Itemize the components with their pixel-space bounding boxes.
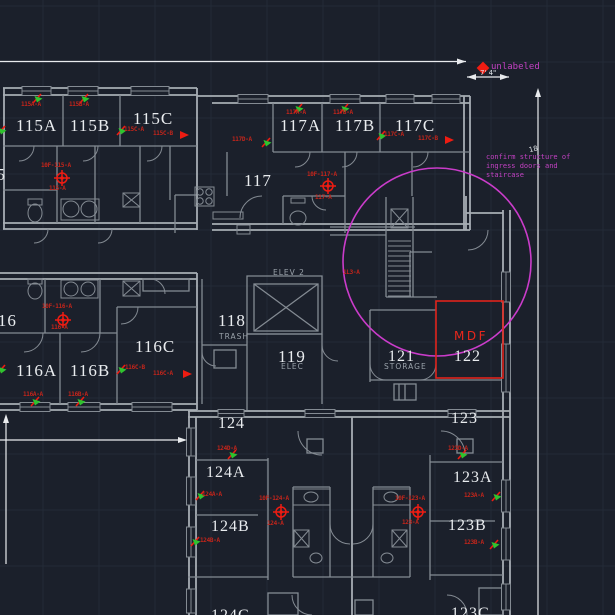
device-flag-marker[interactable] <box>492 492 502 501</box>
device-flag-marker[interactable] <box>262 138 272 147</box>
device-flag-marker[interactable] <box>490 540 500 549</box>
device-label-117-A[interactable]: 117-A <box>315 195 332 201</box>
device-markers-layer <box>0 0 615 615</box>
drawing-canvas[interactable]: 115115A115B115C117A117B117C117116116A116… <box>0 0 615 615</box>
device-label-124B-A[interactable]: 124B-A <box>200 538 220 544</box>
device-label-10F-116-A[interactable]: 10F-116-A <box>42 304 72 310</box>
device-label-124-A[interactable]: 124-A <box>267 521 284 527</box>
room-label-116: 116 <box>0 312 17 329</box>
note-line-1[interactable]: confirm structure of <box>486 154 570 161</box>
device-label-123A-A[interactable]: 123A-A <box>464 493 484 499</box>
device-label-117C-A[interactable]: 117C-A <box>384 132 404 138</box>
room-label-123: 123 <box>451 411 478 427</box>
device-label-115B-A[interactable]: 115B-A <box>69 102 89 108</box>
room-label-116C: 116C <box>135 338 175 355</box>
device-label-10F-115-A[interactable]: 10F-115-A <box>41 163 71 169</box>
device-label-115C-B[interactable]: 115C-B <box>153 131 173 137</box>
note-line-3[interactable]: staircase <box>486 172 524 179</box>
room-label-124B: 124B <box>211 519 250 535</box>
device-label-1L3-A[interactable]: 1L3-A <box>343 270 360 276</box>
device-label-116-A[interactable]: 116-A <box>51 325 68 331</box>
room-label-116B: 116B <box>70 362 110 379</box>
device-label-123-A[interactable]: 123-A <box>402 520 419 526</box>
device-label-117B-A[interactable]: 117B-A <box>333 110 353 116</box>
detector-target-marker[interactable] <box>410 504 426 520</box>
device-arrow-marker[interactable] <box>183 370 192 378</box>
room-label-123C: 123C <box>451 606 490 615</box>
device-label-115A-A[interactable]: 115A-A <box>21 102 41 108</box>
room-label-116A: 116A <box>16 362 57 379</box>
room-label-123A: 123A <box>453 470 493 486</box>
unlabeled-annotation[interactable]: unlabeled <box>491 63 540 72</box>
device-label-10F-123-A[interactable]: 10F-123-A <box>395 496 425 502</box>
device-label-123B-A[interactable]: 123B-A <box>464 540 484 546</box>
device-label-117A-A[interactable]: 117A-A <box>286 110 306 116</box>
device-arrow-marker[interactable] <box>445 136 454 144</box>
room-sublabel-trash: TRASH <box>219 333 249 341</box>
device-flag-marker[interactable] <box>31 397 41 406</box>
detector-target-marker[interactable] <box>54 170 70 186</box>
room-label-124: 124 <box>218 416 245 432</box>
device-flag-marker[interactable] <box>0 365 7 374</box>
room-label-118: 118 <box>218 312 246 329</box>
width-dimension-text: 7' 4" <box>480 70 496 77</box>
device-label-123D-A[interactable]: 123D-A <box>448 446 468 452</box>
room-label-117: 117 <box>244 172 272 189</box>
device-flag-marker[interactable] <box>76 397 86 406</box>
mdf-room-tag[interactable]: MDF <box>454 329 488 343</box>
device-label-116A-A[interactable]: 116A-A <box>23 392 43 398</box>
device-label-116C-A[interactable]: 116C-A <box>153 371 173 377</box>
device-flag-marker[interactable] <box>0 126 7 135</box>
device-label-116B-A[interactable]: 116B-A <box>68 392 88 398</box>
detector-target-marker[interactable] <box>273 504 289 520</box>
room-label-123B: 123B <box>448 518 487 534</box>
device-label-115-A[interactable]: 115-A <box>49 186 66 192</box>
room-label-115B: 115B <box>70 117 110 134</box>
room-label-115C: 115C <box>133 110 173 127</box>
device-label-117C-B[interactable]: 117C-B <box>418 136 438 142</box>
device-label-117D-A[interactable]: 117D-A <box>232 137 252 143</box>
room-label-124A: 124A <box>206 465 246 481</box>
room-label-122: 122 <box>454 349 481 365</box>
device-label-116C-B[interactable]: 116C-B <box>125 365 145 371</box>
device-label-10F-124-A[interactable]: 10F-124-A <box>259 496 289 502</box>
room-label-115A: 115A <box>16 117 57 134</box>
detector-target-marker[interactable] <box>320 178 336 194</box>
note-line-2[interactable]: ingress doors and <box>486 163 558 170</box>
device-label-124A-A[interactable]: 124A-A <box>202 492 222 498</box>
device-arrow-marker[interactable] <box>180 131 189 139</box>
room-sublabel-elev-2: ELEV 2 <box>273 269 305 277</box>
room-label-117A: 117A <box>280 117 321 134</box>
room-label-124C: 124C <box>211 608 250 615</box>
device-label-10F-117-A[interactable]: 10F-117-A <box>307 172 337 178</box>
room-label-117B: 117B <box>335 117 375 134</box>
room-sublabel-storage: STORAGE <box>384 363 427 371</box>
device-label-124D-A[interactable]: 124D-A <box>217 446 237 452</box>
device-label-115C-A[interactable]: 115C-A <box>124 127 144 133</box>
room-label-115: 115 <box>0 166 6 183</box>
room-sublabel-elec: ELEC <box>281 363 304 371</box>
